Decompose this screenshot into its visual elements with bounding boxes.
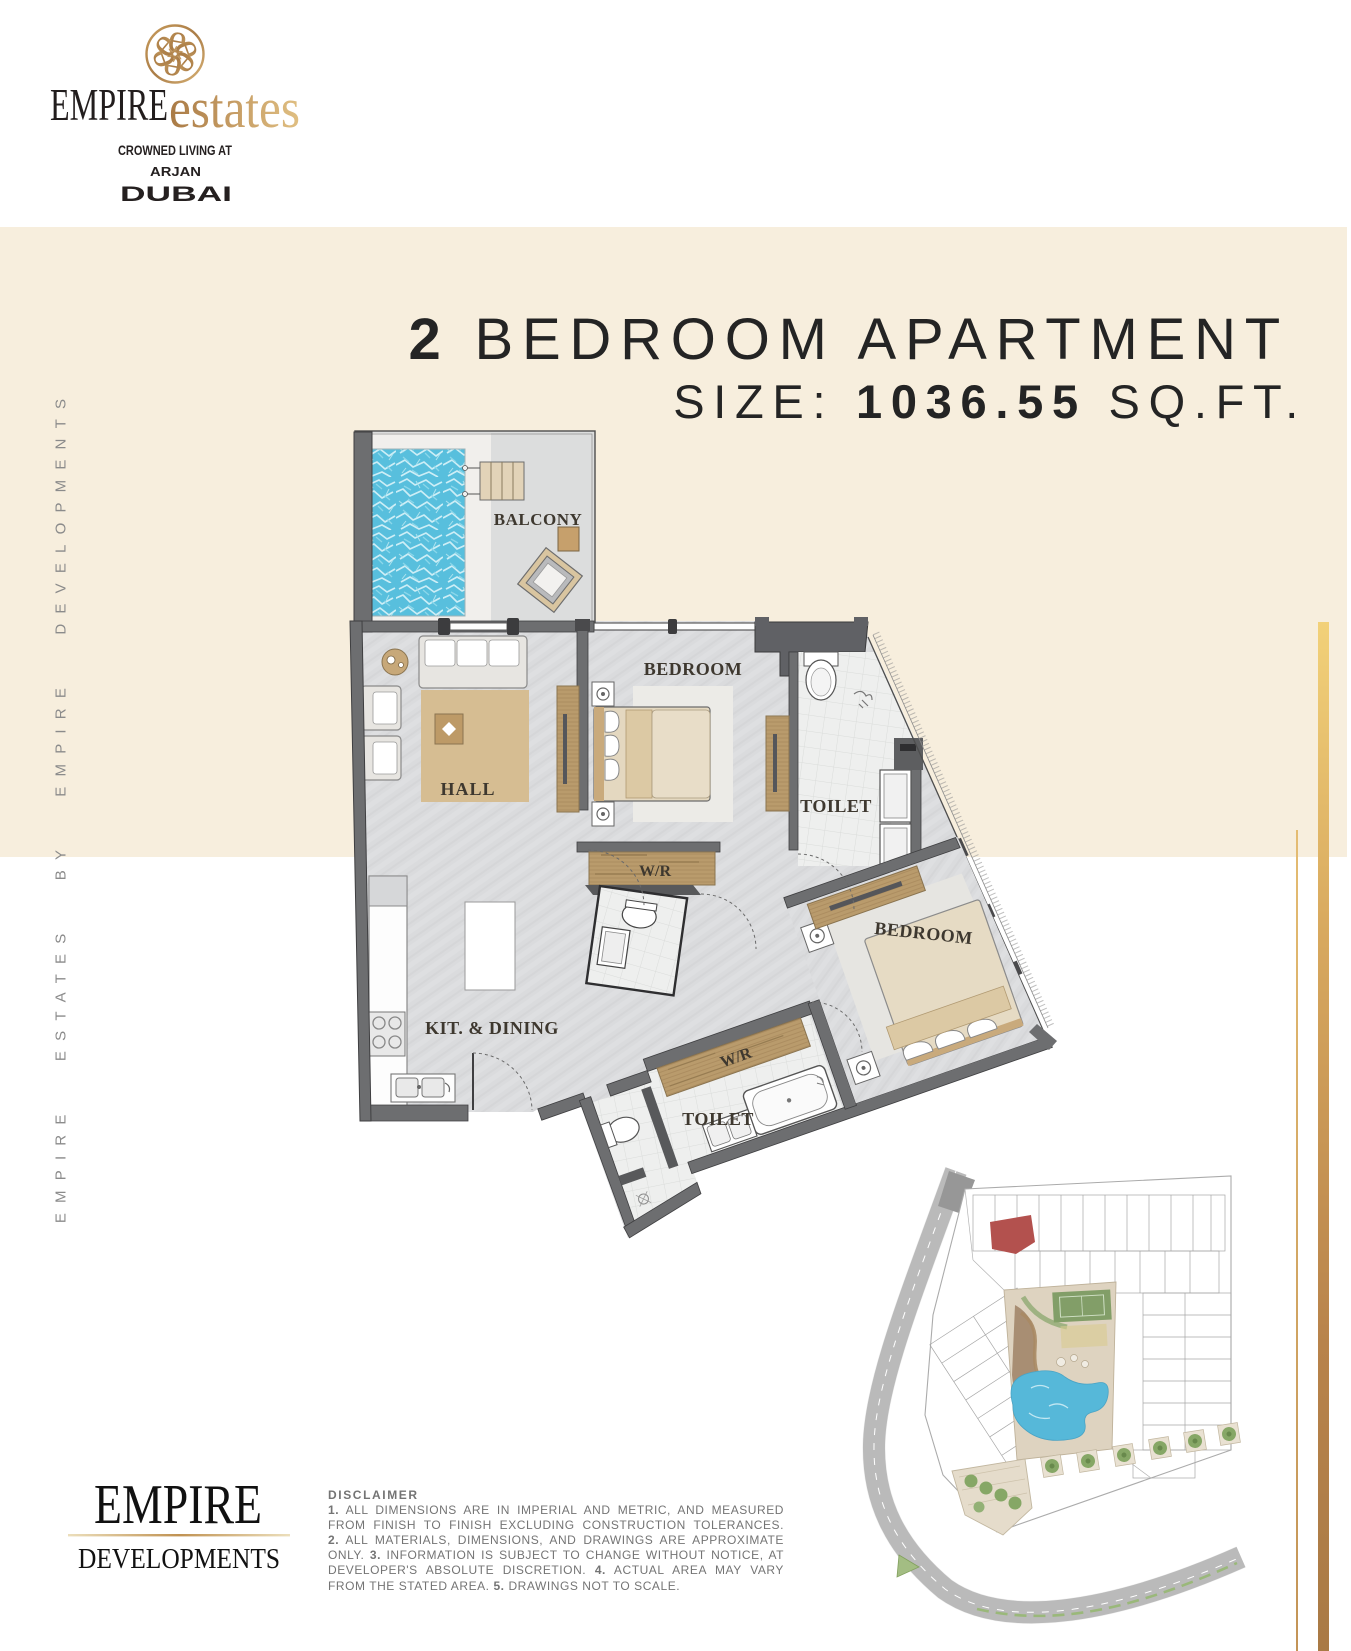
svg-text:HALL: HALL — [440, 779, 495, 799]
svg-text:TOILET: TOILET — [800, 796, 872, 816]
svg-text:DEVELOPMENTS: DEVELOPMENTS — [78, 1543, 280, 1575]
svg-text:BEDROOM: BEDROOM — [644, 659, 743, 679]
svg-text:EMPIRE: EMPIRE — [94, 1474, 262, 1536]
svg-text:TOILET: TOILET — [682, 1109, 754, 1129]
svg-text:KIT. & DINING: KIT. & DINING — [425, 1018, 559, 1038]
svg-text:EMPIRE: EMPIRE — [50, 80, 168, 130]
svg-text:estates: estates — [169, 78, 300, 140]
svg-text:CROWNED LIVING AT: CROWNED LIVING AT — [118, 143, 233, 158]
svg-text:BALCONY: BALCONY — [494, 510, 583, 529]
svg-text:DUBAI: DUBAI — [120, 182, 232, 206]
svg-text:ARJAN: ARJAN — [150, 165, 201, 179]
svg-text:W/R: W/R — [639, 863, 671, 880]
